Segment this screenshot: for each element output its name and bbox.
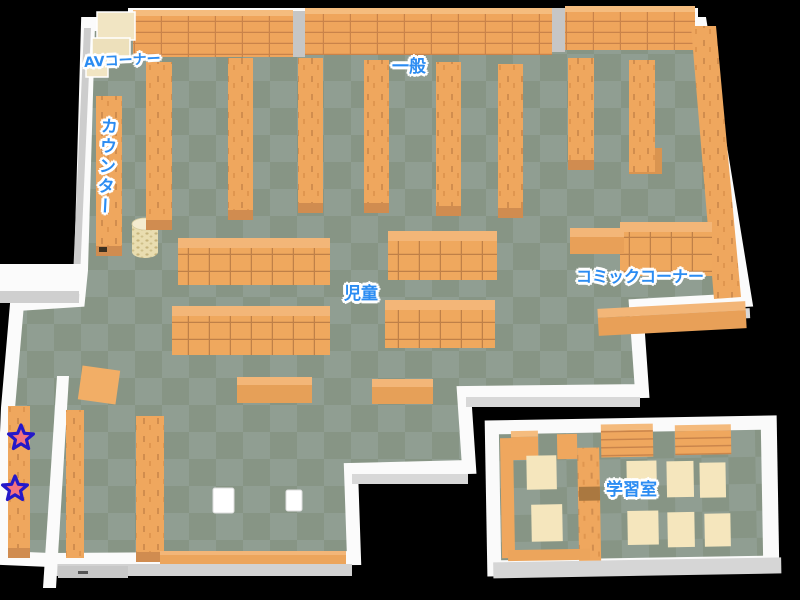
divider-shelf — [577, 448, 601, 561]
bookshelf — [305, 10, 552, 55]
wall-shade-step2 — [466, 397, 640, 407]
bookshelf — [178, 248, 330, 285]
av-unit — [97, 12, 135, 40]
study-table — [667, 512, 695, 547]
top-wall-shelves — [133, 6, 695, 57]
low-shelf-top — [237, 377, 312, 385]
study-table — [704, 513, 731, 546]
bookshelf-top — [565, 6, 695, 12]
floor-map-svg — [0, 0, 800, 600]
bookshelf — [172, 316, 330, 355]
divider-gap — [579, 487, 600, 501]
bookshelf-top — [305, 8, 552, 14]
study-table — [666, 461, 694, 497]
bookshelf-top — [385, 300, 495, 310]
cylinder-base — [132, 246, 158, 258]
bookshelf — [136, 416, 164, 562]
bookshelf-cap — [364, 203, 389, 213]
magazine-rack-top — [601, 424, 653, 431]
seat-box — [213, 488, 234, 513]
wall-shelf-strip — [508, 549, 590, 561]
left-wall-block — [0, 264, 81, 294]
bookshelf — [568, 58, 594, 170]
study-table — [526, 455, 557, 490]
magazine-rack — [675, 430, 731, 455]
entrance-doorway[interactable] — [58, 566, 128, 578]
counter-mark — [99, 247, 107, 252]
bookshelf-top — [172, 306, 330, 316]
bookshelf — [146, 62, 172, 230]
bookshelf-cap — [436, 206, 461, 216]
library-floor-map: AVコーナー 一般 カウンター 児童 コミックコーナー 学習室 — [0, 0, 800, 600]
bookshelf — [385, 310, 495, 348]
bookshelf-top — [620, 222, 712, 232]
label-counter: カウンター — [92, 117, 115, 218]
label-comic-corner: コミックコーナー — [576, 269, 704, 286]
bookshelf-top — [388, 231, 497, 241]
wall-shade-step1 — [352, 474, 468, 484]
bookshelf — [565, 8, 695, 50]
bookshelf-top — [511, 431, 538, 437]
bookshelf — [498, 64, 523, 218]
bookshelf — [388, 241, 497, 280]
study-table — [531, 504, 563, 542]
bookshelf — [436, 62, 461, 216]
bookshelf — [66, 410, 84, 558]
left-wall-block-face — [0, 291, 79, 303]
wall-shelf-strip-top — [160, 551, 346, 555]
wall-pillar — [552, 8, 565, 52]
bookshelf-cap — [568, 160, 594, 170]
bookshelf-cap — [498, 208, 523, 218]
bookshelf-cap — [136, 552, 164, 562]
magazine-rack — [601, 430, 653, 458]
bookshelf-top — [178, 238, 330, 248]
seat-box — [286, 490, 302, 511]
bookshelf-top — [133, 10, 293, 16]
bookshelf — [298, 58, 323, 213]
low-shelf — [237, 385, 312, 403]
low-shelf-top — [372, 379, 433, 387]
bookshelf — [364, 60, 389, 213]
wall-pillar — [293, 11, 305, 57]
magazine-rack-top — [675, 424, 731, 431]
bookshelf — [629, 60, 655, 172]
label-children: 児童 — [344, 286, 378, 304]
bookshelf — [228, 58, 253, 220]
bookshelf — [557, 434, 577, 459]
bookshelf-cap — [228, 210, 253, 220]
study-table — [627, 511, 659, 546]
study-table — [699, 462, 726, 497]
bookshelf — [570, 237, 624, 254]
bookshelf-cap — [298, 203, 323, 213]
reading-table — [78, 366, 120, 405]
bookshelf-top — [570, 228, 624, 237]
door-handle — [78, 571, 88, 574]
bookshelf-cap — [8, 548, 30, 558]
label-general: 一般 — [392, 59, 426, 77]
low-shelf — [372, 387, 433, 404]
label-study-room: 学習室 — [606, 482, 657, 500]
bookshelf-cap — [146, 220, 172, 230]
